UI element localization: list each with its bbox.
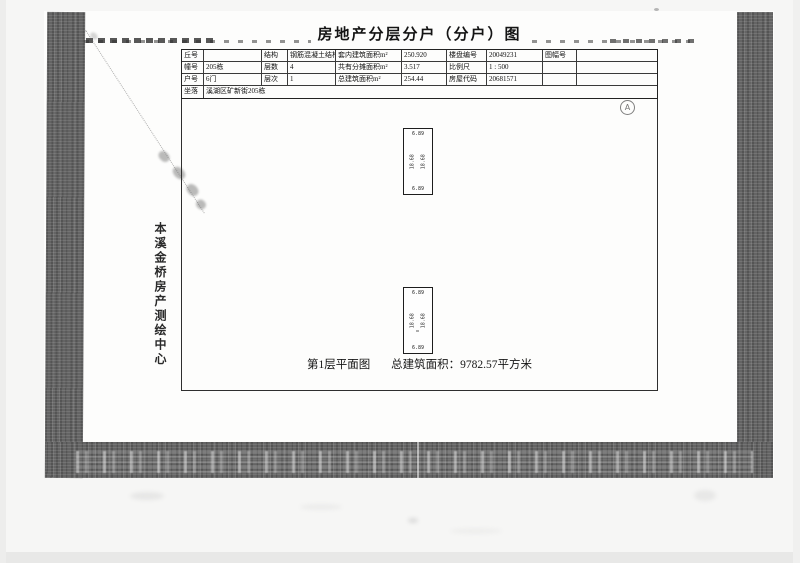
- field-label: 套内建筑面积m²: [336, 50, 402, 62]
- field-value: 20049231: [487, 50, 543, 62]
- field-label: 共有分摊面积m²: [336, 62, 402, 74]
- dimension-side-left: 18.68: [410, 313, 416, 328]
- total-area-label: 总建筑面积：9782.57平方米: [391, 359, 532, 371]
- field-label: 层次: [262, 74, 288, 86]
- field-label: 层数: [262, 62, 288, 74]
- scan-speck: [654, 8, 659, 11]
- field-value: 4: [288, 62, 336, 74]
- field-value: 205栋: [204, 62, 262, 74]
- field-value: 3.517: [402, 62, 447, 74]
- field-label: 楼盘编号: [447, 50, 487, 62]
- floor-plan-unit: 6.89 18.68 18.68 6.89: [403, 287, 433, 354]
- dimension-side-right: 18.68: [421, 154, 427, 169]
- dimension-top: 6.89: [404, 131, 432, 137]
- scan-smudge: [130, 492, 164, 500]
- floor-plan-unit: 6.89 18.68 18.68 6.89: [403, 128, 433, 195]
- field-value: 钢筋混凝土结构: [288, 50, 336, 62]
- field-label: [543, 74, 577, 86]
- photocopy-band-bottom: [46, 442, 773, 478]
- plan-caption: 第1层平面图 总建筑面积：9782.57平方米: [181, 356, 658, 372]
- scanned-document: 房地产分层分户（分户）图 丘号 结构 钢筋混凝土结构 套内建筑面积m² 250.…: [0, 0, 800, 563]
- photocopy-band-right: [737, 12, 773, 478]
- scan-edge-right: [793, 0, 800, 563]
- field-value: [577, 50, 657, 62]
- scan-smudge: [300, 504, 342, 510]
- field-value: [204, 50, 262, 62]
- paper-crease: [417, 442, 419, 478]
- field-label: 丘号: [182, 50, 204, 62]
- field-label: [543, 62, 577, 74]
- dimension-bottom: 6.89: [404, 186, 432, 192]
- field-label: 结构: [262, 50, 288, 62]
- address-label: 坐落: [182, 86, 204, 98]
- field-value: [577, 74, 657, 86]
- field-value: 1: [288, 74, 336, 86]
- dimension-side-right: 18.68: [421, 313, 427, 328]
- property-info-table: 丘号 结构 钢筋混凝土结构 套内建筑面积m² 250.920 楼盘编号 2004…: [181, 49, 658, 99]
- scan-edge-bottom: [0, 552, 800, 563]
- surveying-center-label: 本溪金桥房产测绘中心: [152, 222, 169, 372]
- scan-smudge: [694, 490, 716, 501]
- field-value: [577, 62, 657, 74]
- field-label: 总建筑面积m²: [336, 74, 402, 86]
- field-label: 比例尺: [447, 62, 487, 74]
- page-title: 房地产分层分户（分户）图: [181, 23, 658, 44]
- field-label: 幢号: [182, 62, 204, 74]
- dimension-side-left: 18.68: [410, 154, 416, 169]
- photocopy-band-left: [45, 12, 85, 478]
- dimension-top: 6.89: [404, 290, 432, 296]
- circled-a-symbol-icon: A: [620, 100, 635, 115]
- field-label: 房屋代码: [447, 74, 487, 86]
- ghost-text-artifact: [76, 451, 753, 473]
- field-value: 1 : 500: [487, 62, 543, 74]
- scan-edge-left: [0, 0, 6, 563]
- scan-smudge: [450, 528, 502, 534]
- dimension-bottom: 6.89: [404, 345, 432, 351]
- field-value: 20681571: [487, 74, 543, 86]
- address-value: 溪湖区矿新街205栋: [204, 86, 657, 98]
- scan-speck: [416, 330, 419, 332]
- field-label: 图幅号: [543, 50, 577, 62]
- scan-smudge: [408, 518, 418, 523]
- field-value: 254.44: [402, 74, 447, 86]
- field-value: 6门: [204, 74, 262, 86]
- field-label: 户号: [182, 74, 204, 86]
- floor-label: 第1层平面图: [307, 359, 370, 371]
- field-value: 250.920: [402, 50, 447, 62]
